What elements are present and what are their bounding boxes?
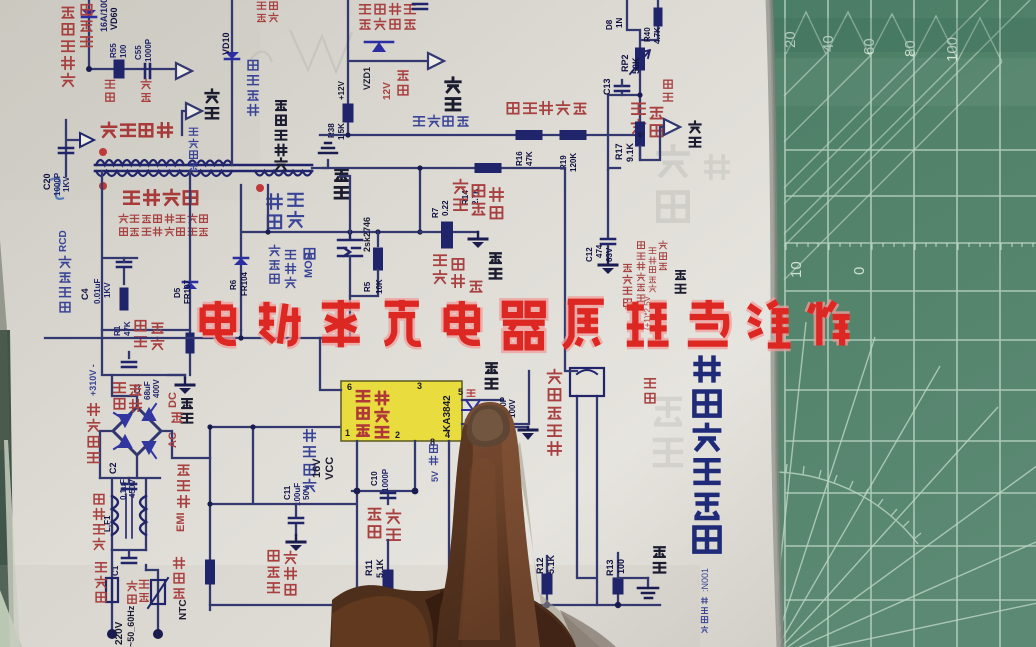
svg-text:FR104: FR104: [240, 271, 249, 296]
svg-text:R12: R12: [535, 557, 545, 574]
svg-text:R55: R55: [109, 43, 118, 58]
svg-text:1KV: 1KV: [103, 282, 112, 298]
svg-text:220V: 220V: [114, 621, 125, 645]
svg-text:RP2: RP2: [620, 54, 630, 72]
svg-text:5.1K: 5.1K: [546, 554, 556, 574]
svg-text:63V: 63V: [605, 247, 614, 262]
svg-text:R7: R7: [431, 207, 440, 218]
svg-text:VD60: VD60: [109, 7, 119, 30]
svg-text:EMI: EMI: [175, 512, 187, 532]
svg-text:1N: 1N: [615, 18, 624, 28]
svg-text::N001: :N001: [700, 568, 710, 592]
svg-text:VZD1: VZD1: [362, 67, 372, 90]
svg-text:C4: C4: [80, 288, 90, 300]
svg-text:FR107: FR107: [183, 279, 192, 304]
svg-text:68uF: 68uF: [143, 381, 152, 400]
svg-text:100: 100: [616, 559, 626, 574]
svg-text:12V: 12V: [382, 82, 393, 100]
svg-text:R1: R1: [113, 325, 122, 336]
svg-text:16V: 16V: [311, 458, 323, 478]
svg-text:C10: C10: [370, 471, 379, 486]
svg-text:R40: R40: [643, 27, 652, 42]
svg-text:400V: 400V: [152, 379, 161, 398]
svg-text:R11: R11: [364, 560, 374, 576]
svg-text:NTC: NTC: [178, 599, 189, 620]
svg-text:1: 1: [345, 428, 350, 438]
svg-text:1KV: 1KV: [62, 176, 71, 192]
svg-text:C13: C13: [602, 78, 612, 95]
svg-text:47K: 47K: [525, 151, 534, 166]
svg-text:2sk2746: 2sk2746: [362, 217, 372, 252]
svg-text:474: 474: [595, 244, 604, 258]
svg-text:KA3842: KA3842: [442, 395, 453, 432]
svg-text:R5: R5: [363, 281, 372, 292]
svg-text:C2: C2: [108, 462, 118, 474]
svg-text:10: 10: [788, 261, 805, 278]
svg-text:5: 5: [458, 387, 463, 397]
svg-text:5V: 5V: [430, 471, 440, 482]
svg-text:C20: C20: [42, 173, 52, 190]
svg-text:0.01uF: 0.01uF: [93, 279, 102, 304]
svg-text:+12V: +12V: [337, 80, 346, 100]
svg-text:1000P: 1000P: [144, 38, 153, 62]
svg-text:4.7K: 4.7K: [653, 27, 662, 44]
svg-text:100: 100: [119, 44, 128, 58]
svg-text:VCC: VCC: [324, 457, 336, 480]
svg-text:D8: D8: [605, 19, 614, 30]
svg-text:0.22: 0.22: [441, 200, 450, 216]
svg-text:4: 4: [445, 430, 450, 440]
svg-text:~50_60Hz: ~50_60Hz: [126, 605, 136, 647]
svg-text:50K: 50K: [631, 57, 641, 74]
svg-text:C11: C11: [283, 485, 292, 500]
svg-text:AC: AC: [167, 432, 179, 448]
svg-text:R6: R6: [229, 279, 238, 290]
svg-text:RCD: RCD: [58, 230, 69, 252]
svg-text:DC: DC: [167, 392, 179, 408]
svg-text:120K: 120K: [569, 153, 578, 172]
svg-text:50V: 50V: [302, 485, 311, 500]
svg-text:R13: R13: [605, 559, 615, 576]
svg-text:R17: R17: [614, 143, 624, 160]
svg-text:16A/100: 16A/100: [99, 0, 109, 32]
svg-text:VD10: VD10: [221, 32, 231, 55]
svg-text:C12: C12: [585, 247, 594, 262]
svg-text:10K: 10K: [375, 279, 384, 294]
svg-text:47K: 47K: [123, 321, 132, 336]
svg-text:+310V -: +310V -: [88, 364, 98, 396]
svg-text:9.1K: 9.1K: [625, 142, 635, 162]
svg-text:C55: C55: [134, 45, 143, 60]
svg-text:1.5K: 1.5K: [337, 123, 346, 140]
svg-text:0: 0: [851, 267, 868, 275]
svg-text:6: 6: [347, 382, 352, 392]
svg-text:100uF: 100uF: [293, 483, 302, 506]
svg-text:1000P: 1000P: [53, 172, 62, 196]
svg-text:1000P: 1000P: [381, 468, 390, 492]
svg-text:R16: R16: [515, 151, 524, 166]
svg-text:3: 3: [417, 381, 422, 391]
svg-text:2: 2: [395, 430, 400, 440]
svg-text:D5: D5: [173, 287, 182, 298]
